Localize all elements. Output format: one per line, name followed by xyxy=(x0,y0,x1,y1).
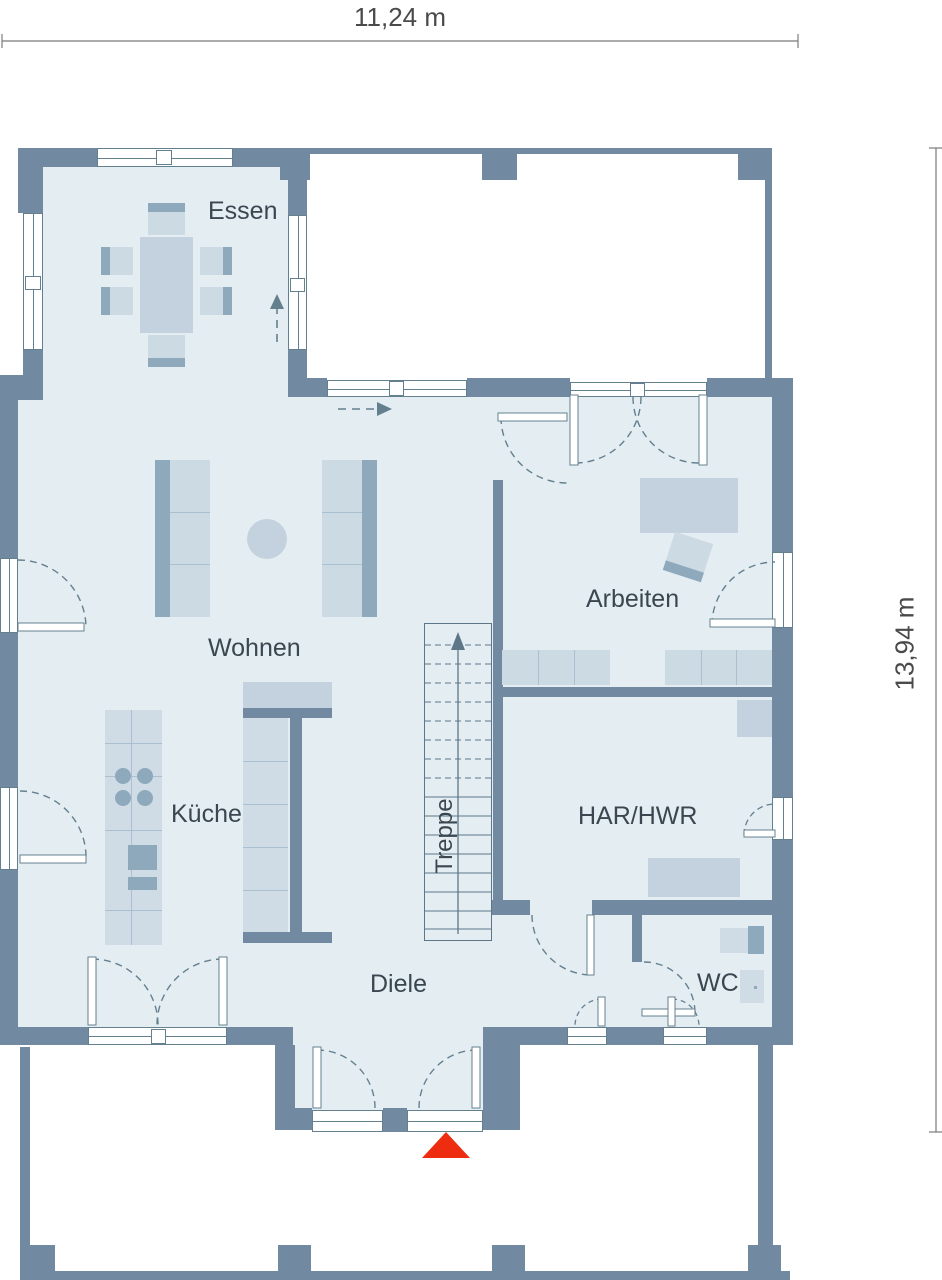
terrace-wall-right xyxy=(758,1045,773,1245)
wall-bottom-b xyxy=(227,1027,293,1045)
wall-court-bottom-c xyxy=(707,378,793,397)
door-arbeiten-top xyxy=(570,382,707,397)
wc-sink-basin xyxy=(748,926,764,954)
door-frame-line xyxy=(408,1121,482,1122)
window-wohnen-top xyxy=(327,380,467,397)
sideboard-right xyxy=(665,650,772,685)
entrance-marker-icon xyxy=(422,1132,470,1158)
cooktop-burner xyxy=(115,768,131,784)
counter-line xyxy=(105,743,162,744)
har-door-floor xyxy=(530,900,592,915)
room-label-diele: Diele xyxy=(370,970,427,999)
bottom-opening-floor xyxy=(293,1027,493,1045)
terrace-pillar-c xyxy=(492,1245,525,1272)
wall-left-a xyxy=(0,400,18,558)
dining-chair-east-1 xyxy=(200,247,232,275)
washer-dryer xyxy=(648,858,740,897)
pillar-top-b xyxy=(482,148,517,180)
toilet-drain xyxy=(754,986,757,989)
wall-bottom-d xyxy=(607,1027,663,1045)
door-frame-line xyxy=(313,1121,382,1122)
wc-toilet xyxy=(740,970,764,1003)
passage-floor xyxy=(493,397,503,480)
wall-right-b xyxy=(772,628,793,797)
window-marker xyxy=(630,383,645,397)
wall-har-stub xyxy=(490,900,530,915)
cabinet-line xyxy=(574,650,575,685)
height-dimension-label: 13,94 m xyxy=(890,574,921,714)
kitchen-sink xyxy=(128,845,157,870)
wall-court-bottom-a xyxy=(288,378,327,397)
chair-back xyxy=(148,358,185,367)
dining-chair-south xyxy=(148,335,185,367)
entrance-door-right xyxy=(407,1110,483,1132)
cooktop-burner xyxy=(115,790,131,806)
counter-line xyxy=(105,776,162,777)
island-counter-top xyxy=(243,682,332,708)
island-bar-top xyxy=(243,708,332,718)
cabinet-line xyxy=(701,650,702,685)
dining-chair-west-1 xyxy=(101,247,133,275)
window-har-right xyxy=(772,797,793,840)
window-glass-line xyxy=(783,798,784,839)
terrace-pillar-b xyxy=(278,1245,311,1272)
door-left-wohnen xyxy=(0,558,18,633)
wall-bottom-e xyxy=(707,1027,793,1045)
door-wohnen-terrace xyxy=(88,1027,227,1045)
wall-court-right xyxy=(765,154,772,380)
floor-plan: 11,24 m 13,94 m Essen Wohnen Küche Arbei… xyxy=(0,0,942,1280)
window-glass-line xyxy=(783,553,784,627)
room-label-arbeiten: Arbeiten xyxy=(586,585,679,614)
sofa-arm xyxy=(155,460,170,617)
pillar-top-a xyxy=(280,148,310,180)
diele-floor xyxy=(493,915,642,1027)
wall-wc-top xyxy=(592,900,773,915)
wall-stairs xyxy=(493,480,503,915)
counter-line xyxy=(131,710,132,945)
width-dimension-label: 11,24 m xyxy=(330,2,470,33)
kitchen-oven xyxy=(128,877,157,890)
cooktop-burner xyxy=(137,768,153,784)
chair-back xyxy=(223,247,232,275)
kitchen-counter xyxy=(105,710,162,945)
wall-court-top xyxy=(307,148,772,154)
sofa-left xyxy=(155,460,210,617)
cabinet-line xyxy=(538,650,539,685)
wall-left-c xyxy=(0,870,18,1027)
wall-bottom-a xyxy=(0,1027,88,1045)
room-label-har-hwr: HAR/HWR xyxy=(578,802,697,831)
room-label-treppe: Treppe xyxy=(431,796,459,876)
wall-vestibule-left-bottom xyxy=(275,1108,312,1130)
island-bar-stem xyxy=(290,718,302,932)
door-frame-line xyxy=(9,788,10,869)
terrace-wall-left xyxy=(20,1047,30,1245)
cabinet-line xyxy=(243,847,288,848)
arbeiten-floor xyxy=(503,397,773,687)
wc-sink xyxy=(720,928,748,953)
wall-vestibule-right xyxy=(483,1027,520,1130)
entrance-door-left xyxy=(312,1110,383,1132)
wall-court-bottom-b xyxy=(467,378,570,397)
desk xyxy=(640,478,738,533)
window-diele-bottom xyxy=(567,1027,607,1045)
dining-chair-west-2 xyxy=(101,287,133,315)
sofa-cushion-line xyxy=(322,564,362,565)
chair-back xyxy=(101,247,110,275)
chair-back xyxy=(223,287,232,315)
cabinet-line xyxy=(243,761,288,762)
width-dimension-line xyxy=(2,34,798,48)
height-dimension-line xyxy=(929,148,942,1132)
terrace-pillar-d xyxy=(748,1245,781,1272)
cooktop-burner xyxy=(137,790,153,806)
counter-line xyxy=(105,910,162,911)
wall-right-c xyxy=(772,840,793,1045)
window-essen-top xyxy=(97,148,233,167)
island-cabinets xyxy=(243,718,288,932)
wall-right-a xyxy=(772,380,793,552)
wall-left-step xyxy=(0,375,43,400)
entrance-mullion xyxy=(383,1108,407,1132)
wall-left-b xyxy=(0,633,18,787)
window-glass-line xyxy=(568,1036,606,1037)
window-marker xyxy=(156,150,172,165)
cabinet-line xyxy=(243,890,288,891)
room-label-wohnen: Wohnen xyxy=(208,634,301,663)
sofa-arm xyxy=(362,460,377,617)
cabinet-line xyxy=(243,804,288,805)
wall-essen-left-low xyxy=(23,350,43,377)
island-bar-bottom xyxy=(243,932,332,943)
cabinet-line xyxy=(736,650,737,685)
door-left-kueche xyxy=(0,787,18,870)
sofa-cushion-line xyxy=(322,512,362,513)
terrace-wall-bottom xyxy=(20,1271,790,1280)
wall-essen-corner xyxy=(18,148,43,213)
window-wc-bottom xyxy=(663,1027,707,1045)
wall-wc-left xyxy=(632,915,642,962)
har-cabinet xyxy=(737,700,772,737)
wall-har-top xyxy=(503,687,793,697)
coffee-table xyxy=(247,519,287,559)
room-label-kueche: Küche xyxy=(171,800,242,829)
sofa-right xyxy=(322,460,377,617)
window-marker xyxy=(389,381,404,396)
sofa-cushion-line xyxy=(170,512,210,513)
chair-back xyxy=(101,287,110,315)
dining-chair-north xyxy=(148,203,185,235)
dining-table xyxy=(140,237,193,333)
vestibule-floor xyxy=(295,1045,483,1110)
window-glass-line xyxy=(664,1036,706,1037)
room-label-wc: WC xyxy=(697,969,739,998)
window-marker xyxy=(25,276,41,290)
window-essen-right xyxy=(288,215,307,350)
sideboard-left xyxy=(502,650,610,685)
window-marker xyxy=(151,1029,166,1044)
chair-back xyxy=(148,203,185,212)
room-label-essen: Essen xyxy=(208,197,277,226)
dining-chair-east-2 xyxy=(200,287,232,315)
window-essen-left xyxy=(23,213,43,350)
door-frame-line xyxy=(9,559,10,632)
terrace-pillar-a xyxy=(20,1245,55,1272)
window-marker xyxy=(290,278,305,292)
sofa-cushion-line xyxy=(170,564,210,565)
door-arbeiten-right xyxy=(772,552,793,628)
counter-line xyxy=(105,830,162,831)
